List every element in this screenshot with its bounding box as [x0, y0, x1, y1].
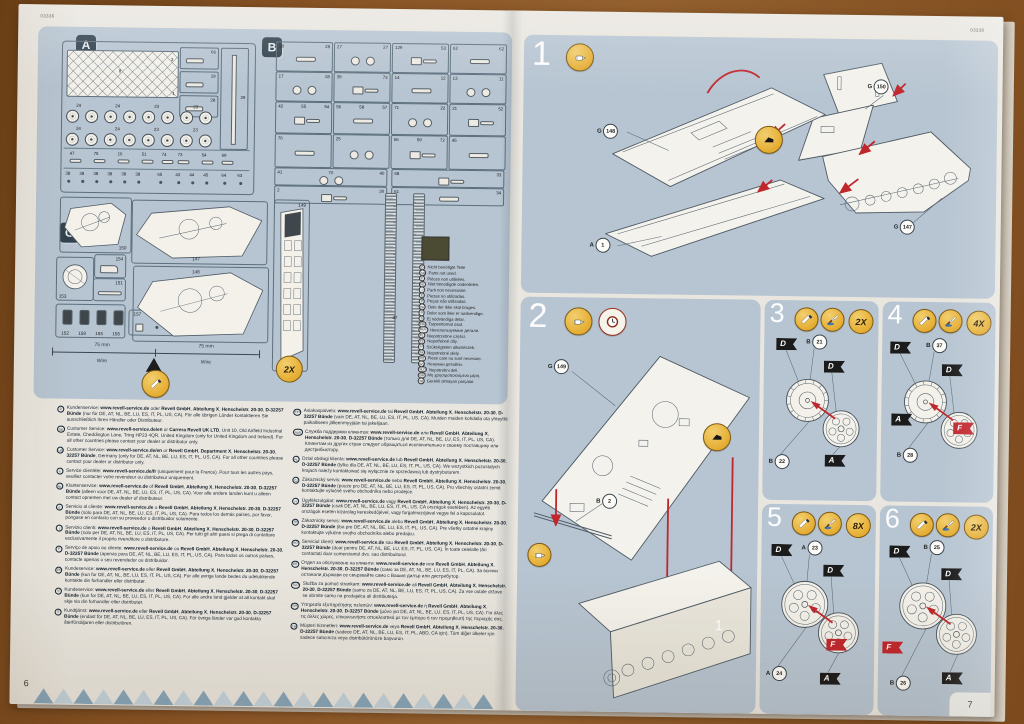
unused-parts-legend: DNicht benötigte TeileGBParts not used.F…	[418, 264, 510, 385]
legend-text: Ej nödvändiga delar.	[427, 316, 465, 321]
page-right: 03336 1	[19, 4, 1004, 17]
service-text: Kundeservice: www.revell-service.de elle…	[65, 566, 283, 587]
part-label: A1	[589, 238, 610, 253]
part-prefix: B	[769, 458, 773, 464]
service-text: Servicio al cliente: www.revell-service.…	[65, 503, 284, 524]
part-number-circle: 2	[602, 494, 617, 509]
legend-text: Tarpeettomat osat.	[428, 322, 463, 327]
service-text: Customer Service: www.revell-service.de/…	[66, 447, 284, 468]
part-number: 154	[116, 256, 124, 261]
figure-part-glyph	[96, 310, 106, 325]
ruler-length-left: 75 mm	[94, 342, 109, 348]
triangle-ornament	[273, 691, 293, 706]
part-number: 156	[112, 331, 120, 336]
part-number-circle: 149	[554, 359, 569, 374]
triangle-ornament	[33, 688, 53, 703]
part-number-circle: 21	[812, 334, 827, 349]
service-column-right: FINAsiakaspalvelu: www.revell-service.de…	[290, 408, 509, 647]
sprue-g-box: 149	[272, 199, 310, 371]
country-code: TR	[290, 623, 297, 630]
page-left: 03336 A 83166192829242423232424232347751…	[19, 4, 1004, 17]
country-code: BG	[291, 560, 299, 567]
service-block-BG: BGОтдел за обслужване на клиенти: www.re…	[291, 560, 507, 581]
step-4-diagram	[880, 301, 996, 502]
service-block-SLO: SLOSlužba za pomoč strankam: www.revell-…	[291, 581, 507, 602]
page-number-7: 7	[967, 700, 972, 710]
part-label: G149	[548, 359, 569, 374]
part-number-circle: 23	[807, 540, 822, 555]
triangle-ornament	[433, 694, 453, 709]
triangle-ornament	[413, 693, 433, 708]
part-label: B2	[596, 494, 617, 509]
service-block-F: FService clientèle: www.revell-service.d…	[56, 467, 284, 482]
unused-parts-color-swatch	[421, 236, 449, 260]
ring-sketch	[57, 258, 94, 300]
country-code: D	[57, 405, 64, 412]
step-3-diagram	[762, 300, 878, 501]
service-block-DK: DKKundeservice: www.revell-service.de el…	[55, 566, 283, 587]
service-text: Служба поддержки клиентов: www.revell-se…	[305, 429, 509, 455]
legend-text: Piezas no utilizadas.	[427, 293, 465, 298]
part-number-circle: 22	[774, 454, 789, 469]
service-block-GB: GBCustomer Service: www.revell-service.d…	[57, 425, 285, 446]
service-block-H: HÜgyfélszolgálat: www.revell-service.de …	[292, 497, 508, 518]
part-prefix: B	[924, 544, 928, 550]
service-text: Serviciul clienți: www.revell-service.de…	[302, 539, 508, 559]
country-code: S	[55, 608, 62, 615]
legend-text: Nepotřebné díly.	[427, 339, 457, 344]
triangle-ornament	[113, 689, 133, 704]
part-number: 147	[192, 256, 200, 261]
knife-glyph	[150, 378, 162, 390]
part-prefix: B	[596, 498, 600, 504]
service-block-GR: GRΥπηρεσία εξυπηρέτησης πελατών: www.rev…	[291, 602, 507, 623]
country-code: CZ	[292, 477, 299, 484]
service-block-S: SKundtjänst: www.revell-service.de eller…	[54, 608, 282, 629]
part-prefix: A	[801, 545, 805, 551]
country-code: NL	[56, 483, 63, 490]
hull-sketch	[133, 267, 268, 343]
subassembly-callout: 1	[714, 617, 723, 634]
part-label: B25	[923, 540, 944, 555]
triangle-ornament	[173, 690, 193, 705]
part-prefix: G	[868, 84, 873, 90]
part-number-circle: 37	[932, 338, 947, 353]
part-prefix: G	[597, 128, 602, 134]
country-code: I	[56, 525, 63, 532]
ruler-wire-left: Wire	[97, 358, 107, 364]
ruler-wire-right: Wire	[201, 359, 211, 365]
legend-text: Parti non necessarie.	[427, 287, 466, 293]
part-prefix: A	[589, 242, 593, 248]
part-number-circle: 150	[874, 79, 889, 94]
part-prefix: B	[897, 452, 901, 458]
part-label: B22	[769, 454, 790, 469]
page-number-notch: 7	[949, 692, 990, 717]
triangle-ornament	[333, 692, 353, 707]
paint-swatch-icon	[755, 126, 783, 154]
triangle-ornament	[133, 690, 153, 705]
part-number: 151	[115, 280, 123, 285]
ruler-tick	[259, 350, 260, 358]
part-label: B21	[806, 334, 827, 349]
track-part-number: 37	[392, 315, 397, 320]
service-text: Servizio clienti: www.revell-service.de …	[65, 524, 284, 545]
triangle-ornament	[313, 692, 333, 707]
step-2-panel: 2	[515, 297, 760, 714]
service-block-PL: PLDział obsługi klienta: www.revell-serv…	[292, 455, 508, 476]
part-glyph	[98, 291, 122, 295]
service-text: Υπηρεσία εξυπηρέτησης πελατών: www.revel…	[301, 602, 507, 622]
service-text: Kundenservice: www.revell-service.de ode…	[67, 405, 286, 426]
part-prefix: B	[806, 339, 810, 345]
part-number: 155	[95, 331, 103, 336]
part-label: B28	[897, 448, 918, 463]
legend-text: Nepotrebni deli.	[429, 367, 458, 372]
part-number-circle: 26	[896, 676, 911, 691]
part-number-circle: 147	[900, 220, 915, 235]
service-text: Zákaznický servis: www.revell-service.de…	[302, 476, 509, 496]
figure-part-glyph	[79, 310, 89, 325]
triangle-ornament	[233, 691, 253, 706]
triangle-ornament	[353, 692, 373, 707]
triangle-ornament	[293, 692, 313, 707]
country-code: DK	[55, 566, 62, 573]
part-number: 158	[78, 331, 86, 336]
step-5-panel: 58XDDFAA23A24	[759, 504, 876, 715]
service-text: Ügyfélszolgálat: www.revell-service.de v…	[301, 497, 508, 517]
step-1-panel: 1	[521, 35, 998, 299]
part-label: G148	[597, 124, 618, 139]
sprue-g-box: 151	[93, 278, 126, 301]
legend-text: Nicht benötigte Teile	[428, 265, 466, 270]
service-text: Müşteri hizmetleri: www.revell-service.d…	[300, 623, 507, 643]
sprue-g-box: 154	[94, 254, 126, 278]
country-code: PL	[293, 456, 300, 463]
language-code: TR	[418, 378, 425, 384]
country-code: SK	[292, 519, 299, 526]
country-code: GR	[291, 602, 299, 609]
service-text: Asiakaspalvelu: www.revell-service.de ta…	[304, 408, 510, 428]
service-block-CZ: CZZákaznický servis: www.revell-service.…	[292, 476, 508, 497]
part-prefix: G	[894, 224, 899, 230]
service-block-RO: ROServiciul clienți: www.revell-service.…	[291, 539, 507, 560]
country-code: RO	[292, 539, 300, 546]
cement-glyph	[533, 549, 545, 561]
hull-sketch	[60, 198, 131, 253]
country-code: US	[57, 447, 64, 454]
kit-code-left: 03336	[40, 13, 54, 18]
figure-part-glyph	[62, 310, 72, 325]
service-text: Zákaznícky servis: www.revell-service.de…	[301, 518, 508, 538]
legend-text: Dele der ikke skal bruges.	[428, 305, 476, 311]
service-block-NL: NLKlantenservice: www.revell-service.de …	[56, 482, 284, 503]
service-block-TR: TRMüşteri hizmetleri: www.revell-service…	[290, 623, 506, 644]
country-code: P	[55, 545, 62, 552]
service-text: Kundtjänst: www.revell-service.de eller …	[64, 608, 283, 629]
part-number: 150	[119, 245, 127, 250]
kit-code-right: 03336	[970, 27, 984, 32]
part-prefix: A	[766, 670, 770, 676]
country-code: SLO	[291, 581, 300, 588]
service-text: Klantenservice: www.revell-service.de of…	[66, 482, 285, 503]
part-label: B37	[926, 338, 947, 353]
clock-glyph	[606, 316, 618, 328]
triangle-ornament	[473, 694, 493, 709]
part-prefix: G	[548, 363, 553, 369]
service-block-E: EServicio al cliente: www.revell-service…	[56, 503, 284, 524]
part-number: 148	[192, 269, 200, 274]
service-text: Customer Service: www.revell-service.de/…	[67, 426, 285, 447]
country-code: H	[292, 498, 299, 505]
part-prefix: B	[926, 342, 930, 348]
cement-glyph	[572, 315, 584, 327]
country-code: GB	[57, 426, 65, 433]
service-block-RUS: RUSСлужба поддержки клиентов: www.revell…	[293, 429, 509, 455]
triangle-ornament	[213, 691, 233, 706]
service-text: Služba za pomoč strankam: www.revell-ser…	[303, 581, 508, 601]
triangle-ornament	[93, 689, 113, 704]
legend-item: TRGerekli olmayan parçalar.	[418, 378, 508, 385]
part-label: A23	[801, 540, 822, 555]
part-prefix: B	[890, 680, 894, 686]
sprue-g-box: 153	[56, 257, 95, 301]
plate-sketch	[273, 200, 309, 370]
part-label: A24	[766, 666, 787, 681]
country-code: E	[56, 504, 63, 511]
part-number-circle: 1	[595, 238, 610, 253]
sprue-g-box: 150	[59, 197, 132, 254]
photo-of-instruction-sheet: { "colors": {"blue":"#b7c5d2","paper":"#…	[0, 0, 1024, 724]
legend-text: Gerekli olmayan parçalar.	[427, 378, 475, 384]
triangle-ornament	[373, 693, 393, 708]
part-number-circle: 28	[902, 448, 917, 463]
part-label: G147	[894, 220, 915, 235]
sprue-g-box: 152158155156	[55, 304, 125, 339]
service-text: Dział obsługi klienta: www.revell-servic…	[302, 455, 509, 475]
cement-glyph	[574, 51, 586, 63]
instruction-sheet: 03336 A 83166192829242423232424232347751…	[9, 4, 1003, 717]
step-3-panel: 32XDDAB21B22	[762, 300, 879, 501]
service-text: Serviço de apoio ao cliente: www.revell-…	[65, 545, 284, 566]
triangle-ornament	[53, 689, 73, 704]
cement-icon	[566, 43, 594, 71]
triangle-ornament	[193, 690, 213, 705]
part-glyph	[100, 265, 118, 273]
country-code: N	[55, 587, 62, 594]
service-block-I: IServizio clienti: www.revell-service.de…	[56, 524, 284, 545]
hull-sketch	[132, 201, 267, 265]
ruler-tick	[155, 349, 156, 357]
ruler-length-right: 75 mm	[198, 343, 213, 349]
legend-text: Pièces non utilisées.	[427, 276, 465, 281]
ruler-tick	[52, 347, 53, 355]
legend-text: Nepotrebné diely.	[427, 350, 460, 355]
service-column-left: DKundenservice: www.revell-service.de od…	[54, 405, 285, 632]
service-text: Отдел за обслужване на клиенти: www.reve…	[301, 560, 507, 580]
part-number-circle: 24	[772, 666, 787, 681]
figure-part-glyph	[113, 310, 123, 325]
country-code: F	[56, 468, 63, 475]
triangle-ornament	[453, 694, 473, 709]
country-code: RUS	[293, 429, 303, 436]
service-block-P: PServiço de apoio ao cliente: www.revell…	[55, 545, 283, 566]
step-1-diagram	[521, 35, 998, 299]
triangle-ornament	[73, 689, 93, 704]
page-number-6: 6	[24, 678, 29, 688]
country-code: FIN	[293, 408, 301, 415]
step-5-diagram	[759, 504, 875, 715]
service-block-FIN: FINAsiakaspalvelu: www.revell-service.de…	[293, 408, 509, 429]
paint-swatch-glyph	[763, 134, 775, 146]
triangle-ornament	[393, 693, 413, 708]
sprue-g-box: 148	[132, 266, 269, 344]
part-number: 152	[61, 331, 69, 336]
service-block-SK: SKZákaznícky servis: www.revell-service.…	[292, 518, 508, 539]
step-6-panel: 62XDDFAB25B26	[877, 505, 993, 716]
track-strip	[383, 193, 397, 363]
service-block-N: NKundeservice: www.revell-service.de ell…	[55, 587, 283, 608]
triangle-ornament	[153, 690, 173, 705]
part-label: B26	[890, 675, 911, 690]
service-text: Service clientèle: www.revell-service.de…	[66, 467, 285, 482]
legend-text: Peças não utilizadas.	[427, 299, 467, 305]
sprue-g-box: 147	[131, 200, 268, 266]
part-number-circle: 148	[603, 124, 618, 139]
legend-text: Ненужни детайли.	[427, 361, 463, 366]
triangle-ornament	[253, 691, 273, 706]
service-block-D: DKundenservice: www.revell-service.de od…	[57, 405, 285, 426]
legend-text: Parts not used.	[429, 270, 457, 275]
part-number-circle: 25	[929, 540, 944, 555]
service-block-US: USCustomer Service: www.revell-service.d…	[57, 446, 285, 467]
service-text: Kundeservice: www.revell-service.de elle…	[64, 587, 283, 608]
parts-map-panel: A 83166192829242423232424232347751651747…	[33, 26, 512, 404]
step-4-panel: 44XDDAFB37B28	[880, 301, 996, 502]
paint-swatch-glyph	[711, 431, 723, 443]
part-label: G150	[867, 79, 888, 94]
legend-text: Niepotrzebne części.	[427, 333, 466, 339]
